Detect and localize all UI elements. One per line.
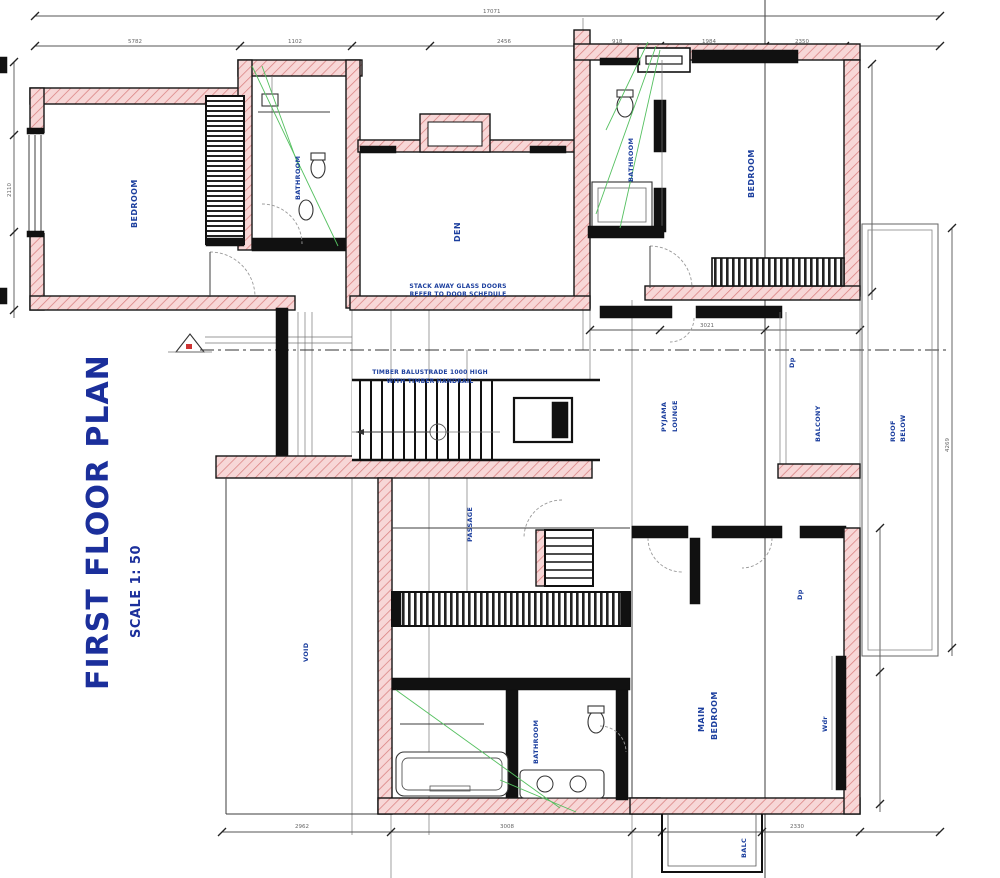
room-label-bathroom-left: BATHROOM bbox=[294, 156, 302, 200]
lower-stair-flight bbox=[392, 592, 630, 626]
window-lintel bbox=[692, 50, 798, 63]
window-seat bbox=[638, 48, 690, 72]
window-west bbox=[26, 128, 46, 237]
stair-note-2: WITH TIMBER HANDRAIL bbox=[387, 378, 474, 385]
room-label-bathroom-top: BATHROOM bbox=[627, 138, 635, 182]
dimension-label: 2456 bbox=[497, 39, 511, 45]
room-label-void: VOID bbox=[302, 642, 310, 662]
room-label-bedroom-left: BEDROOM bbox=[130, 179, 139, 228]
room-label-den: DEN bbox=[453, 222, 462, 242]
door-swing-arc bbox=[210, 252, 255, 297]
window-lintel bbox=[600, 58, 640, 65]
section-marker bbox=[0, 57, 7, 73]
floor-plan-canvas: 17071 5782 1102 2456 918 1984 2350 2110 … bbox=[0, 0, 1000, 878]
main-bedroom-walls bbox=[630, 526, 860, 814]
room-label-passage: PASSAGE bbox=[466, 507, 474, 542]
room-label-pyjama-1: PYJAMA bbox=[660, 402, 668, 432]
door-swing-arc bbox=[742, 538, 772, 568]
room-label-main-bedroom-2: BEDROOM bbox=[710, 691, 719, 740]
room-label-roof-1: ROOF bbox=[889, 420, 897, 442]
dimension-label: 1102 bbox=[288, 39, 302, 45]
label-wardrobe: Wdr bbox=[821, 716, 829, 732]
walls-den bbox=[350, 30, 590, 310]
stair-note-1: TIMBER BALUSTRADE 1000 HIGH bbox=[372, 369, 488, 376]
dimension-label: 2962 bbox=[295, 824, 309, 830]
section-marker bbox=[0, 288, 7, 304]
walls-top-band bbox=[574, 44, 860, 238]
room-label-main-bedroom-1: MAIN bbox=[697, 707, 706, 732]
den-note-2: REFER TO DOOR SCHEDULE bbox=[410, 291, 507, 298]
toilet-icon bbox=[588, 711, 604, 733]
drawing-title: FIRST FLOOR PLAN SCALE 1: 50 bbox=[81, 354, 144, 690]
label-lower-balcony: BALC bbox=[740, 838, 748, 858]
page-subtitle: SCALE 1: 50 bbox=[129, 545, 144, 638]
toilet-icon bbox=[311, 158, 325, 178]
room-label-balcony: BALCONY bbox=[814, 405, 822, 442]
wardrobe-unit bbox=[832, 656, 846, 790]
den-niche bbox=[420, 114, 490, 152]
balcony-railing bbox=[712, 258, 844, 286]
door-swing-arc bbox=[650, 246, 692, 288]
dimension-label: 2110 bbox=[7, 183, 13, 197]
main-bathroom bbox=[378, 678, 660, 814]
bathroom-left-south-wall bbox=[252, 238, 346, 251]
room-label-bathroom-main: BATHROOM bbox=[532, 720, 540, 764]
dimension-label: 17071 bbox=[483, 9, 501, 15]
basin-icon bbox=[299, 200, 313, 220]
label-downpipe-1: Dp bbox=[788, 357, 796, 368]
door-swing-arc bbox=[648, 538, 682, 572]
toilet-icon bbox=[617, 95, 633, 117]
landing-wall bbox=[276, 308, 288, 460]
dimension-label: 3008 bbox=[500, 824, 514, 830]
dimension-label: 2330 bbox=[790, 824, 804, 830]
main-stair bbox=[352, 380, 600, 460]
room-label-bedroom-right: BEDROOM bbox=[747, 149, 756, 198]
floor-plan-page: 17071 5782 1102 2456 918 1984 2350 2110 … bbox=[0, 0, 1000, 878]
room-label-roof-2: BELOW bbox=[899, 415, 907, 443]
page-title: FIRST FLOOR PLAN bbox=[81, 354, 116, 690]
label-downpipe-2: Dp bbox=[796, 589, 804, 600]
dimension-label: 3021 bbox=[700, 323, 714, 329]
den-note-1: STACK AWAY GLASS DOORS bbox=[409, 283, 506, 290]
winder-stair bbox=[536, 530, 593, 586]
built-in-cupboard bbox=[206, 96, 244, 246]
dimension-label: 5782 bbox=[128, 39, 142, 45]
dimension-label: 4269 bbox=[945, 438, 951, 452]
room-label-pyjama-2: LOUNGE bbox=[671, 400, 679, 432]
duct-shaft bbox=[514, 398, 572, 442]
